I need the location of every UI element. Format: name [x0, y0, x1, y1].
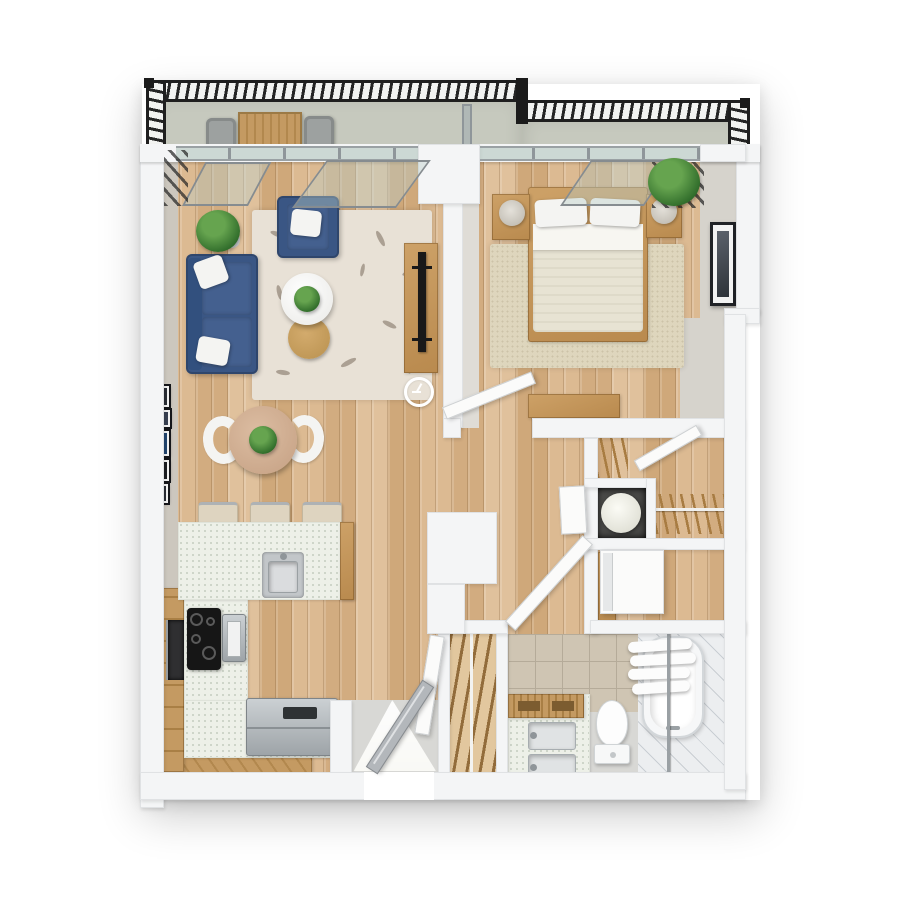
sink-faucet	[280, 553, 287, 560]
cooktop	[187, 608, 221, 670]
vanity-wooden-tray	[508, 694, 584, 718]
armchair-pillow	[290, 209, 323, 238]
wall-bedroom-south-stub	[443, 418, 461, 438]
railing-post	[740, 98, 750, 108]
coffee-table-plant	[294, 286, 320, 312]
appliance-slot	[283, 707, 317, 719]
steel-appliance	[246, 698, 338, 756]
microwave-door	[227, 621, 241, 657]
washer-control-panel	[603, 553, 613, 611]
foot-bench	[528, 394, 620, 418]
shower-curtain-fold	[628, 667, 690, 680]
linen-closet-shelves	[450, 634, 496, 786]
sink-faucet	[530, 764, 537, 771]
wall-closet-west	[584, 438, 598, 634]
tray-slot	[552, 701, 574, 711]
balcony-railing-top-left	[146, 80, 526, 102]
bed-duvet	[533, 250, 643, 332]
mirror-panel	[559, 485, 587, 534]
burner	[202, 646, 216, 660]
living-room-glass-wall	[176, 146, 418, 161]
clock-hand	[412, 391, 421, 393]
burner	[206, 617, 215, 626]
wall-clock	[404, 377, 434, 407]
sofa-pillow	[195, 335, 231, 366]
flush-button	[610, 752, 616, 758]
sink-faucet	[530, 732, 537, 739]
exterior-wall-right-lower	[724, 314, 746, 790]
balcony-railing-top-right	[522, 100, 750, 122]
tray-slot	[518, 701, 540, 711]
tv-foot	[412, 266, 432, 269]
toilet-cistern	[594, 744, 630, 764]
tv-foot	[412, 338, 432, 341]
burner	[190, 613, 203, 626]
toilet-bowl	[596, 700, 628, 746]
bed-sheet	[533, 224, 643, 250]
sink-basin	[268, 561, 298, 593]
wall-bathroom-west	[496, 620, 508, 790]
railing-post	[516, 78, 528, 124]
table-lamp	[499, 200, 525, 226]
utility-shaft	[427, 512, 497, 584]
bedroom-wall-art	[710, 222, 736, 306]
railing-shadow-corner-left	[164, 150, 188, 206]
washer	[600, 550, 664, 614]
north-wall-right-segment	[700, 144, 746, 162]
art-image	[717, 231, 729, 297]
balcony-plant	[648, 158, 700, 206]
wall-bedroom-south	[532, 418, 744, 438]
utility-shaft-leg	[427, 584, 465, 634]
railing-post	[144, 78, 154, 88]
island-wood-end	[340, 522, 354, 600]
wall-bathroom-north	[590, 620, 746, 634]
north-wall-mid-segment	[418, 144, 480, 204]
shower-rod	[667, 628, 670, 774]
dining-table-plant	[249, 426, 277, 454]
built-in-oven	[166, 620, 184, 680]
appliance-seam	[247, 727, 339, 729]
water-heater	[601, 493, 641, 533]
microwave	[222, 614, 246, 662]
exterior-wall-right-upper	[736, 144, 760, 314]
linen-closet-pole	[470, 634, 473, 786]
exterior-wall-bottom	[140, 772, 746, 800]
burner	[191, 634, 201, 644]
wall-closet-south	[584, 538, 744, 550]
water-heater-nook	[596, 488, 646, 538]
floor-plan	[0, 0, 900, 900]
living-room-plant	[196, 210, 240, 252]
wall-entry-kitchen-stub	[330, 700, 352, 774]
kitchen-sink	[262, 552, 304, 598]
exterior-wall-left	[140, 144, 164, 808]
front-doorway-gap	[364, 772, 434, 800]
